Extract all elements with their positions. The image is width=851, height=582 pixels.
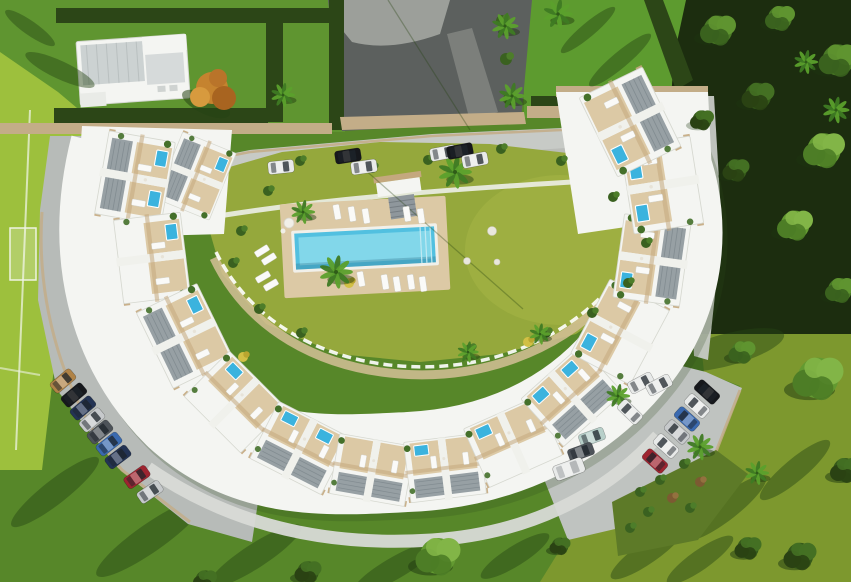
goal-frame [10,228,36,280]
villa-roof-b [145,52,185,85]
hedge-top [56,8,332,23]
villa-wing [142,34,187,53]
car [267,159,294,175]
villa-ac-unit-2 [169,85,177,92]
pebble-circle [488,227,497,236]
pebble-circle [464,258,471,265]
hedge-drive-left [329,0,344,130]
building-unit [111,210,191,306]
hedge-bottom [54,108,268,124]
villa [76,34,190,108]
aerial-render-stage [0,0,851,582]
pebble-circle [494,259,500,265]
aerial-render [0,0,851,582]
side-table [281,229,286,234]
villa-ac-unit-1 [157,86,165,93]
villa-terrace-steps [80,92,107,108]
parasol [284,218,294,228]
hedge-right-vertical [266,8,283,122]
